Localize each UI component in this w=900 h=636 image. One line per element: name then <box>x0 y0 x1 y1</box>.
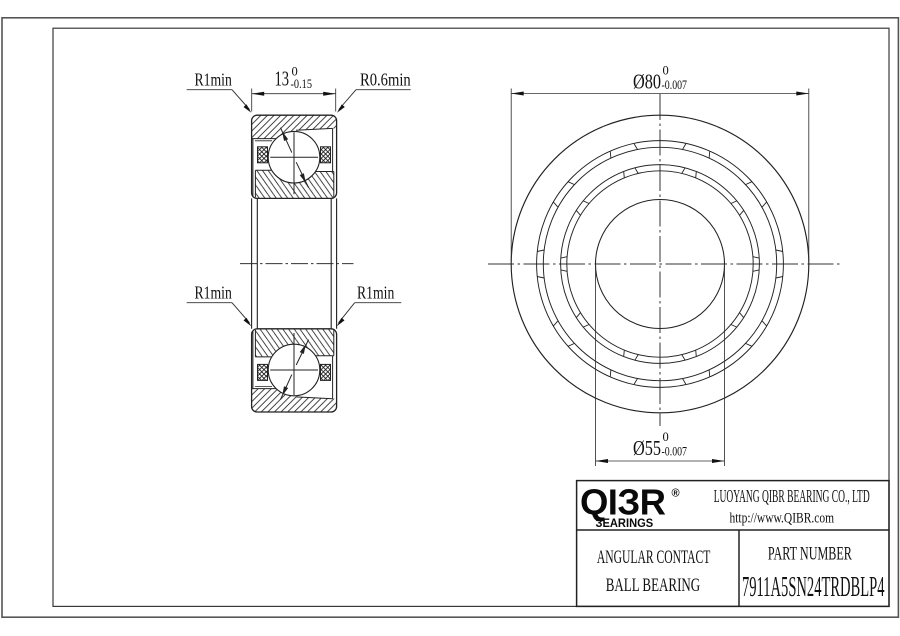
svg-text:R0.6min: R0.6min <box>360 70 411 90</box>
svg-text:0: 0 <box>663 64 669 78</box>
svg-text:-0.007: -0.007 <box>662 78 688 92</box>
svg-text:PART NUMBER: PART NUMBER <box>768 544 852 565</box>
svg-text:ЗEARINGS: ЗEARINGS <box>596 518 654 530</box>
svg-text:R1min: R1min <box>195 283 232 303</box>
svg-text:®: ® <box>672 488 680 500</box>
svg-text:Ø55: Ø55 <box>633 436 661 460</box>
svg-text:QIЗR: QIЗR <box>580 482 666 523</box>
svg-text:BALL BEARING: BALL BEARING <box>606 575 701 596</box>
svg-text:-0.15: -0.15 <box>291 77 313 91</box>
svg-text:R1min: R1min <box>357 283 394 303</box>
svg-text:LUOYANG QIBR BEARING CO., LTD: LUOYANG QIBR BEARING CO., LTD <box>714 486 870 506</box>
svg-text:ANGULAR CONTACT: ANGULAR CONTACT <box>597 547 711 568</box>
svg-text:13: 13 <box>275 67 290 91</box>
svg-text:http://www.QIBR.com: http://www.QIBR.com <box>730 511 835 527</box>
svg-text:Ø80: Ø80 <box>633 70 661 94</box>
svg-text:0: 0 <box>663 430 669 444</box>
svg-text:R1min: R1min <box>195 70 232 90</box>
svg-text:-0.007: -0.007 <box>662 445 688 459</box>
svg-text:7911A5SN24TRDBLP4: 7911A5SN24TRDBLP4 <box>742 571 885 603</box>
